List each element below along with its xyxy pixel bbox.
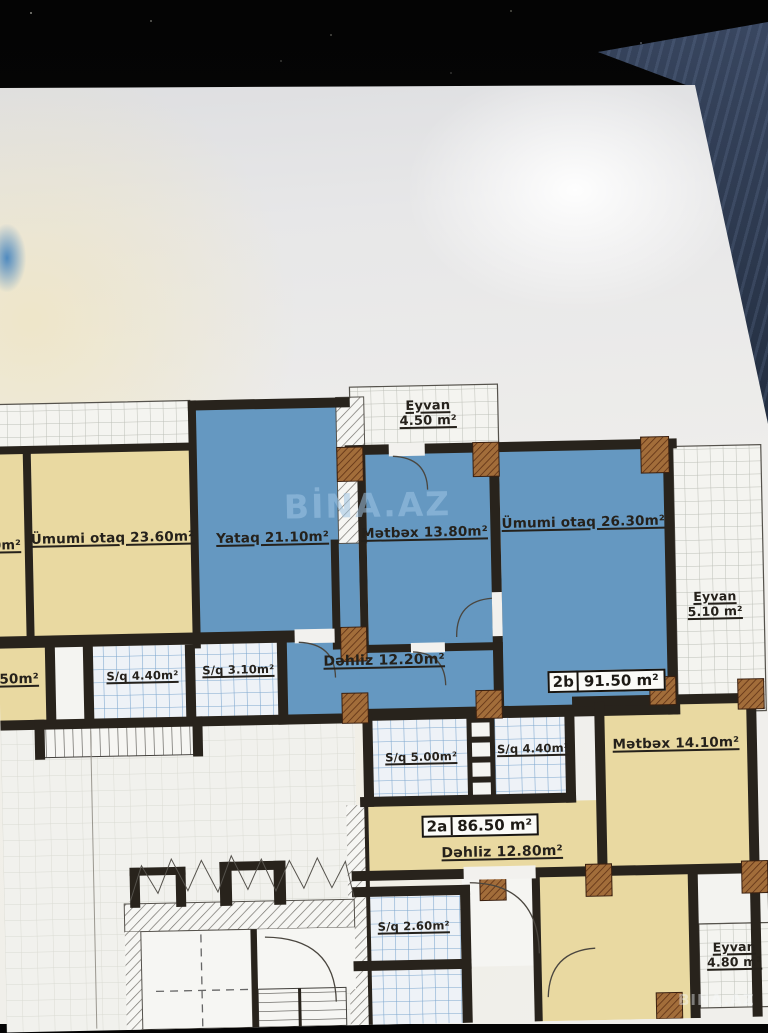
room-area: 4.50 m² — [382, 413, 474, 430]
apartment-code: 2a — [423, 817, 452, 836]
room-label-yataq: Yataq 21.10m² — [202, 529, 342, 548]
room-label-partial-mid: .50m² — [0, 672, 44, 689]
room-label-dehliz-1280: Dəhliz 12.80m² — [429, 843, 575, 863]
apartment-label-2b: 2b 91.50 m² — [547, 669, 665, 693]
room-label-sq-440-a: S/q 4.40m² — [95, 669, 189, 685]
room-area: 5.10 m² — [680, 604, 750, 620]
apartment-label-2a: 2a 86.50 m² — [421, 813, 539, 837]
apartment-area: 91.50 m² — [579, 671, 664, 691]
room-label-dehliz-1220: Dəhliz 12.20m² — [313, 651, 455, 670]
room-label-sq-310: S/q 3.10m² — [193, 663, 283, 678]
room-label-sq-500: S/q 5.00m² — [373, 750, 469, 766]
room-label-sq-440-b: S/q 4.40m² — [489, 742, 577, 757]
room-label-eyvan-right: Eyvan 5.10 m² — [680, 589, 751, 620]
room-label-eyvan-bottom: Eyvan 4.80 m² — [701, 940, 768, 971]
apartment-area: 86.50 m² — [452, 815, 537, 835]
room-label-eyvan-top: Eyvan 4.50 m² — [382, 398, 475, 431]
floor-plan: Eyvan 4.50 m² Ümumi otaq 23.60m² Yataq 2… — [0, 0, 768, 1033]
room-label-metbex-13: Mətbəx 13.80m² — [354, 524, 494, 543]
room-label-metbex-14: Mətbəx 14.10m² — [601, 735, 751, 754]
watermark-corner: BINA.AZ — [678, 991, 755, 1009]
watermark-center: BİNA.AZ — [284, 484, 452, 526]
photo-background: Eyvan 4.50 m² Ümumi otaq 23.60m² Yataq 2… — [0, 0, 768, 1024]
room-area: 4.80 m² — [701, 954, 767, 970]
room-label-sq-260: S/q 2.60m² — [367, 919, 461, 935]
room-label-partial-top: 0m² — [0, 538, 25, 554]
apartment-code: 2b — [549, 672, 579, 691]
